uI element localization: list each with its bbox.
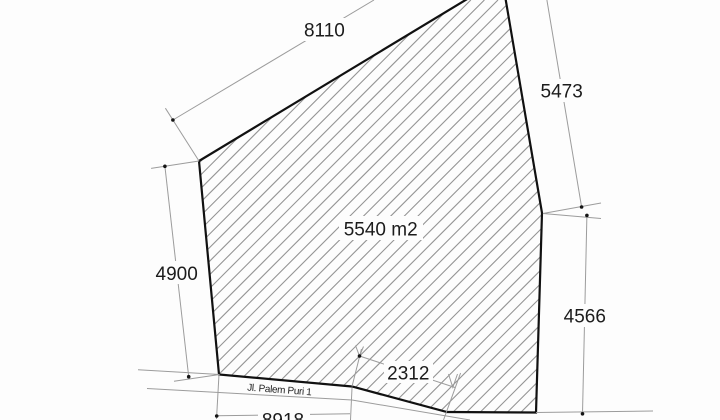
svg-text:4900: 4900 [156, 264, 198, 285]
svg-text:2312: 2312 [387, 364, 429, 385]
svg-text:8110: 8110 [304, 20, 345, 41]
svg-text:5540 m2: 5540 m2 [344, 219, 418, 240]
svg-text:5473: 5473 [541, 81, 583, 102]
svg-text:8918: 8918 [262, 411, 304, 420]
svg-text:4566: 4566 [564, 307, 606, 328]
